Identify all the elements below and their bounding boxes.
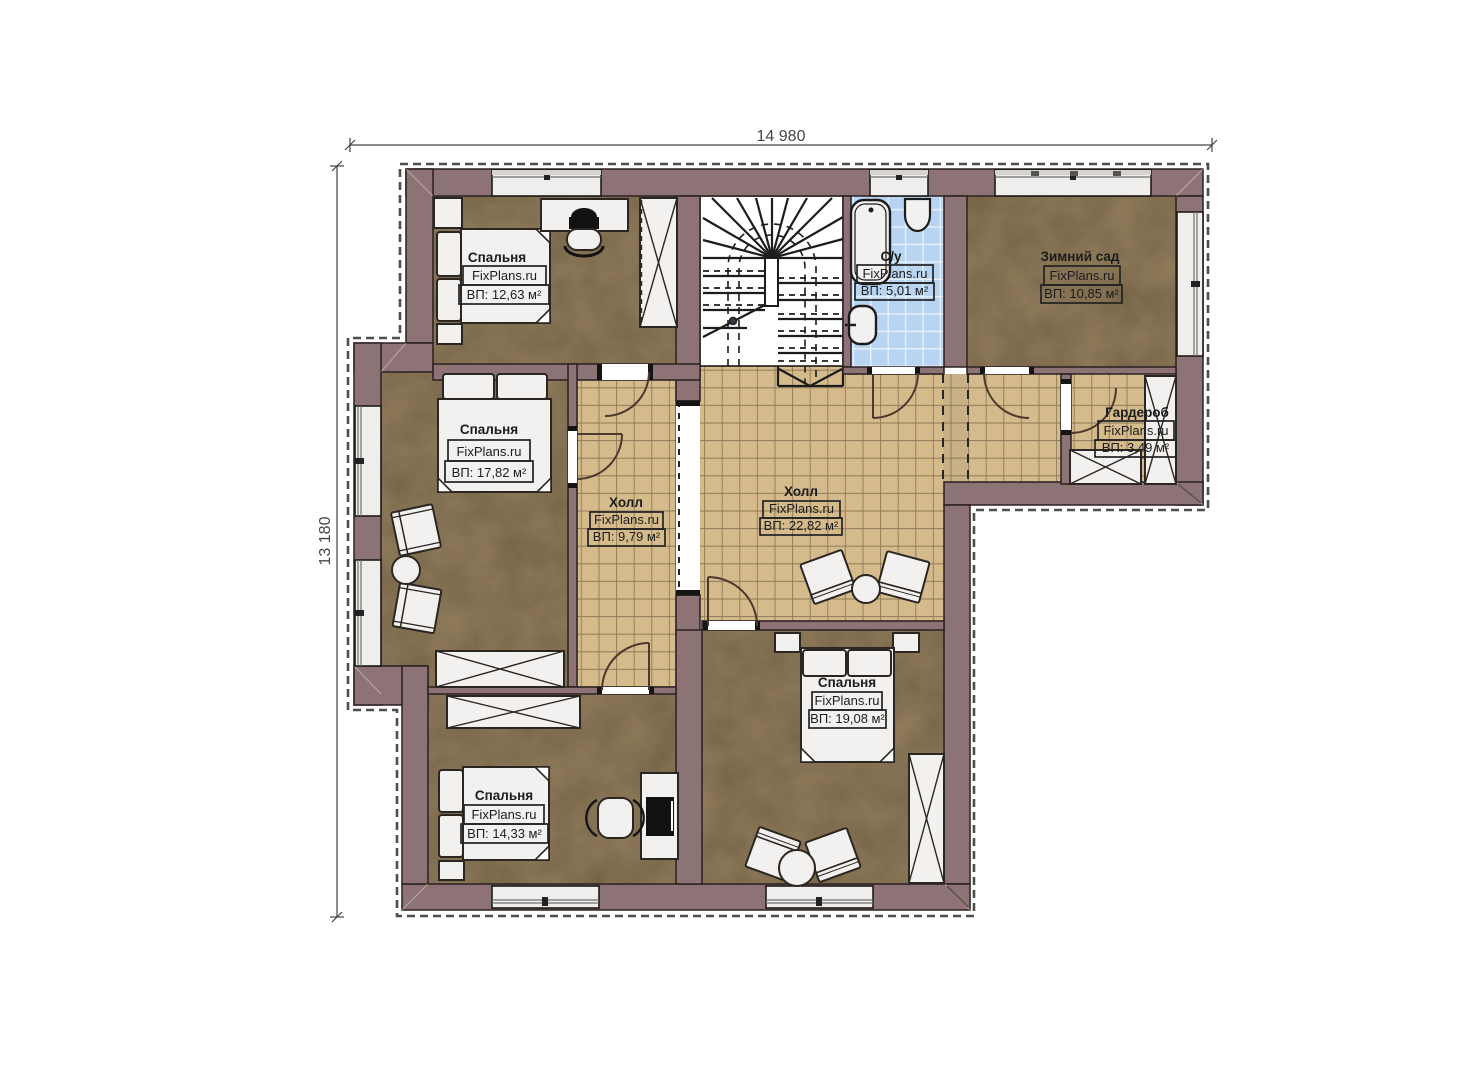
svg-text:14 980: 14 980: [757, 128, 806, 145]
svg-text:С/у: С/у: [880, 249, 902, 264]
svg-text:Холл: Холл: [609, 495, 643, 510]
svg-text:FixPlans.ru: FixPlans.ru: [1103, 423, 1168, 438]
svg-text:ВП: 19,08 м²: ВП: 19,08 м²: [810, 711, 885, 726]
svg-text:ВП: 5,01 м²: ВП: 5,01 м²: [861, 283, 929, 298]
svg-text:ВП: 9,79 м²: ВП: 9,79 м²: [593, 529, 661, 544]
svg-text:Спальня: Спальня: [468, 250, 526, 265]
svg-text:FixPlans.ru: FixPlans.ru: [472, 268, 537, 283]
svg-text:ВП: 17,82 м²: ВП: 17,82 м²: [452, 465, 527, 480]
svg-text:ВП: 14,33 м²: ВП: 14,33 м²: [467, 826, 542, 841]
svg-text:FixPlans.ru: FixPlans.ru: [456, 444, 521, 459]
svg-text:FixPlans.ru: FixPlans.ru: [814, 693, 879, 708]
svg-text:Спальня: Спальня: [818, 675, 876, 690]
svg-text:Спальня: Спальня: [475, 788, 533, 803]
svg-text:ВП: 10,85 м²: ВП: 10,85 м²: [1044, 286, 1119, 301]
svg-text:ВП: 12,63 м²: ВП: 12,63 м²: [467, 287, 542, 302]
svg-text:FixPlans.ru: FixPlans.ru: [471, 807, 536, 822]
svg-text:ВП: 22,82 м²: ВП: 22,82 м²: [764, 518, 839, 533]
svg-text:Гардероб: Гардероб: [1105, 405, 1169, 420]
svg-text:Спальня: Спальня: [460, 422, 518, 437]
svg-text:Холл: Холл: [784, 484, 818, 499]
svg-text:FixPlans.ru: FixPlans.ru: [769, 501, 834, 516]
svg-text:ВП: 3,49 м²: ВП: 3,49 м²: [1102, 440, 1170, 455]
svg-text:FixPlans.ru: FixPlans.ru: [862, 266, 927, 281]
svg-text:FixPlans.ru: FixPlans.ru: [1049, 268, 1114, 283]
svg-text:13 180: 13 180: [317, 516, 334, 565]
svg-text:Зимний сад: Зимний сад: [1041, 249, 1120, 264]
svg-text:FixPlans.ru: FixPlans.ru: [594, 512, 659, 527]
